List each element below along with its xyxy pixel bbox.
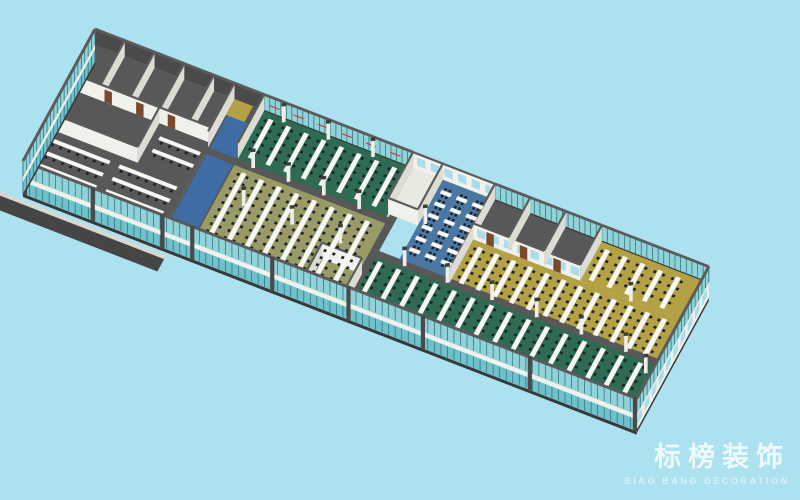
column-cap xyxy=(242,186,245,190)
column-cap xyxy=(287,162,290,166)
column-cap xyxy=(535,298,538,302)
render-canvas: 标榜装饰 BIAO BANG DECORATION xyxy=(0,0,800,500)
column-cap xyxy=(644,354,647,358)
column-cap xyxy=(282,103,285,107)
column-cap xyxy=(252,149,255,153)
column-cap xyxy=(291,205,294,209)
building-floorplan-svg xyxy=(0,0,800,500)
column-cap xyxy=(371,137,374,141)
column-cap xyxy=(322,176,325,180)
column-cap xyxy=(624,332,627,336)
column-cap xyxy=(424,205,427,209)
column-cap xyxy=(490,280,493,284)
column-cap xyxy=(580,315,583,319)
column-cap xyxy=(339,224,342,228)
column-cap xyxy=(358,190,361,194)
column-cap xyxy=(446,263,449,267)
column-cap xyxy=(629,282,632,286)
column-cap xyxy=(327,120,330,124)
column-cap xyxy=(403,247,406,251)
